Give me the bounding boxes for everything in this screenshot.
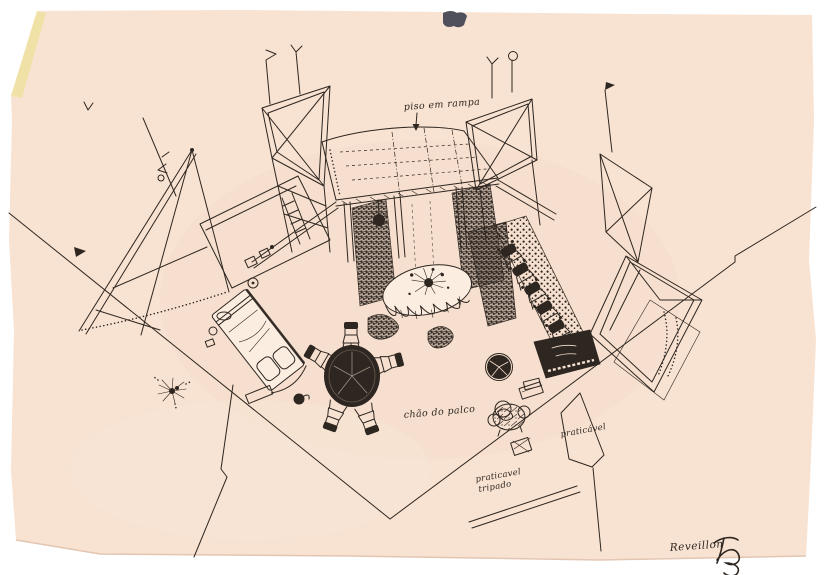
sketch-artwork: piso em rampa chão do palco praticável p… [0, 0, 829, 575]
paper-tone-mottle-2 [70, 400, 430, 540]
scanned-sketch-canvas: piso em rampa chão do palco praticável p… [0, 0, 829, 575]
pouf [486, 354, 513, 381]
ink-smudge [443, 11, 467, 27]
